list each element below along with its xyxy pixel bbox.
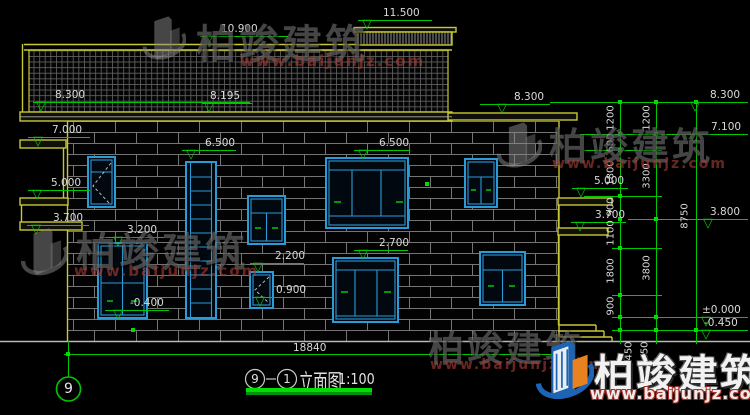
entry-steps [558, 325, 612, 341]
axis-bubble-circle [57, 377, 81, 401]
tiled-roof [29, 50, 448, 112]
left-step-edges [22, 148, 64, 222]
elevation-drawing [0, 0, 750, 415]
window [326, 158, 408, 228]
window [333, 258, 398, 322]
left-slab-7000 [20, 140, 66, 148]
right-eave-3700 [558, 228, 608, 235]
left-eave-3700 [20, 222, 82, 230]
title-axis-bubbles [246, 370, 297, 389]
elevation-drawing-canvas: ▽11.500▽10.900▽8.300▽8.195▽7.000▽6.500▽6… [0, 0, 750, 415]
right-slab-5000 [558, 198, 612, 205]
parapet [358, 32, 452, 45]
left-slab-5000 [20, 198, 68, 205]
flat-roof-band [448, 113, 577, 120]
extension-lines [550, 103, 748, 331]
window [88, 157, 115, 207]
